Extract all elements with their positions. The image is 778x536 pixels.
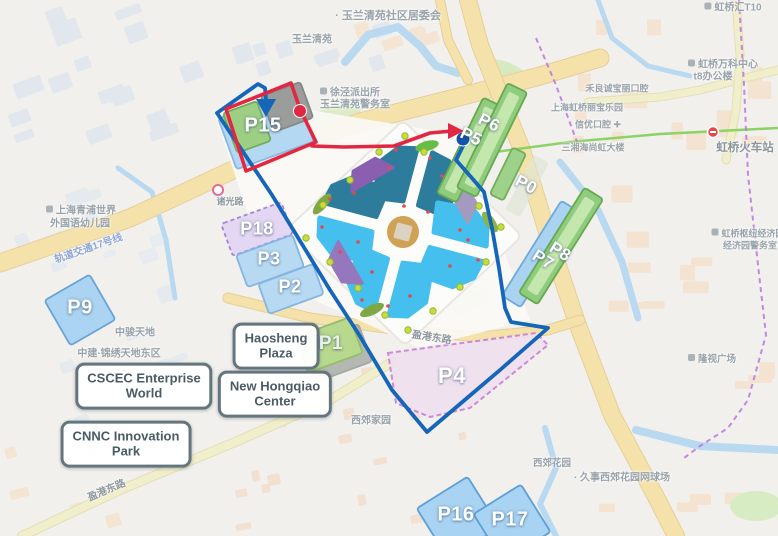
gate-dot	[466, 238, 470, 242]
gate-dot	[370, 270, 374, 274]
no-entry-bar	[710, 131, 716, 133]
map-canvas: Haosheng Plaza New Hongqiao Center CSCEC…	[0, 0, 778, 536]
road-dot	[376, 149, 382, 155]
gate-dot	[402, 204, 406, 208]
waterway	[636, 430, 778, 450]
gate-dot	[386, 304, 390, 308]
gate-dot	[320, 225, 324, 229]
road-dot	[382, 312, 388, 318]
gate-dot	[394, 148, 398, 152]
gate-dot	[387, 166, 391, 170]
gate-dot	[440, 174, 444, 178]
road-dot	[476, 203, 482, 209]
gate-dot	[356, 240, 360, 244]
gate-dot	[448, 264, 452, 268]
road-dot	[303, 235, 309, 241]
waterway	[598, 0, 690, 76]
gate-dot	[338, 250, 342, 254]
gate-dot	[408, 294, 412, 298]
gate-dot	[360, 298, 364, 302]
road-dot	[405, 327, 411, 333]
gate-dot	[476, 258, 480, 262]
parking-area-p4	[388, 333, 548, 417]
road-dot	[483, 259, 489, 265]
road-dot	[347, 177, 353, 183]
red-route-marker-dot	[294, 105, 307, 118]
parking-area-p9	[44, 274, 115, 345]
road-dot	[457, 284, 463, 290]
blue-route-marker-dot	[456, 132, 470, 146]
road-dot	[402, 133, 408, 139]
district-boundary	[536, 38, 577, 142]
road-dot	[320, 202, 326, 208]
road-dot	[355, 285, 361, 291]
gate-dot	[352, 191, 356, 195]
metro-station-icon	[213, 185, 223, 195]
road-dot	[327, 259, 333, 265]
road-dot	[498, 224, 504, 230]
gate-dot	[428, 156, 432, 160]
gate-dot	[458, 228, 462, 232]
road-dot	[430, 308, 436, 314]
gate-dot	[328, 197, 332, 201]
parking-area-p17	[473, 484, 550, 536]
map-graphics	[0, 0, 778, 536]
road-dot	[421, 149, 427, 155]
gate-dot	[426, 210, 430, 214]
waterway	[118, 168, 175, 298]
